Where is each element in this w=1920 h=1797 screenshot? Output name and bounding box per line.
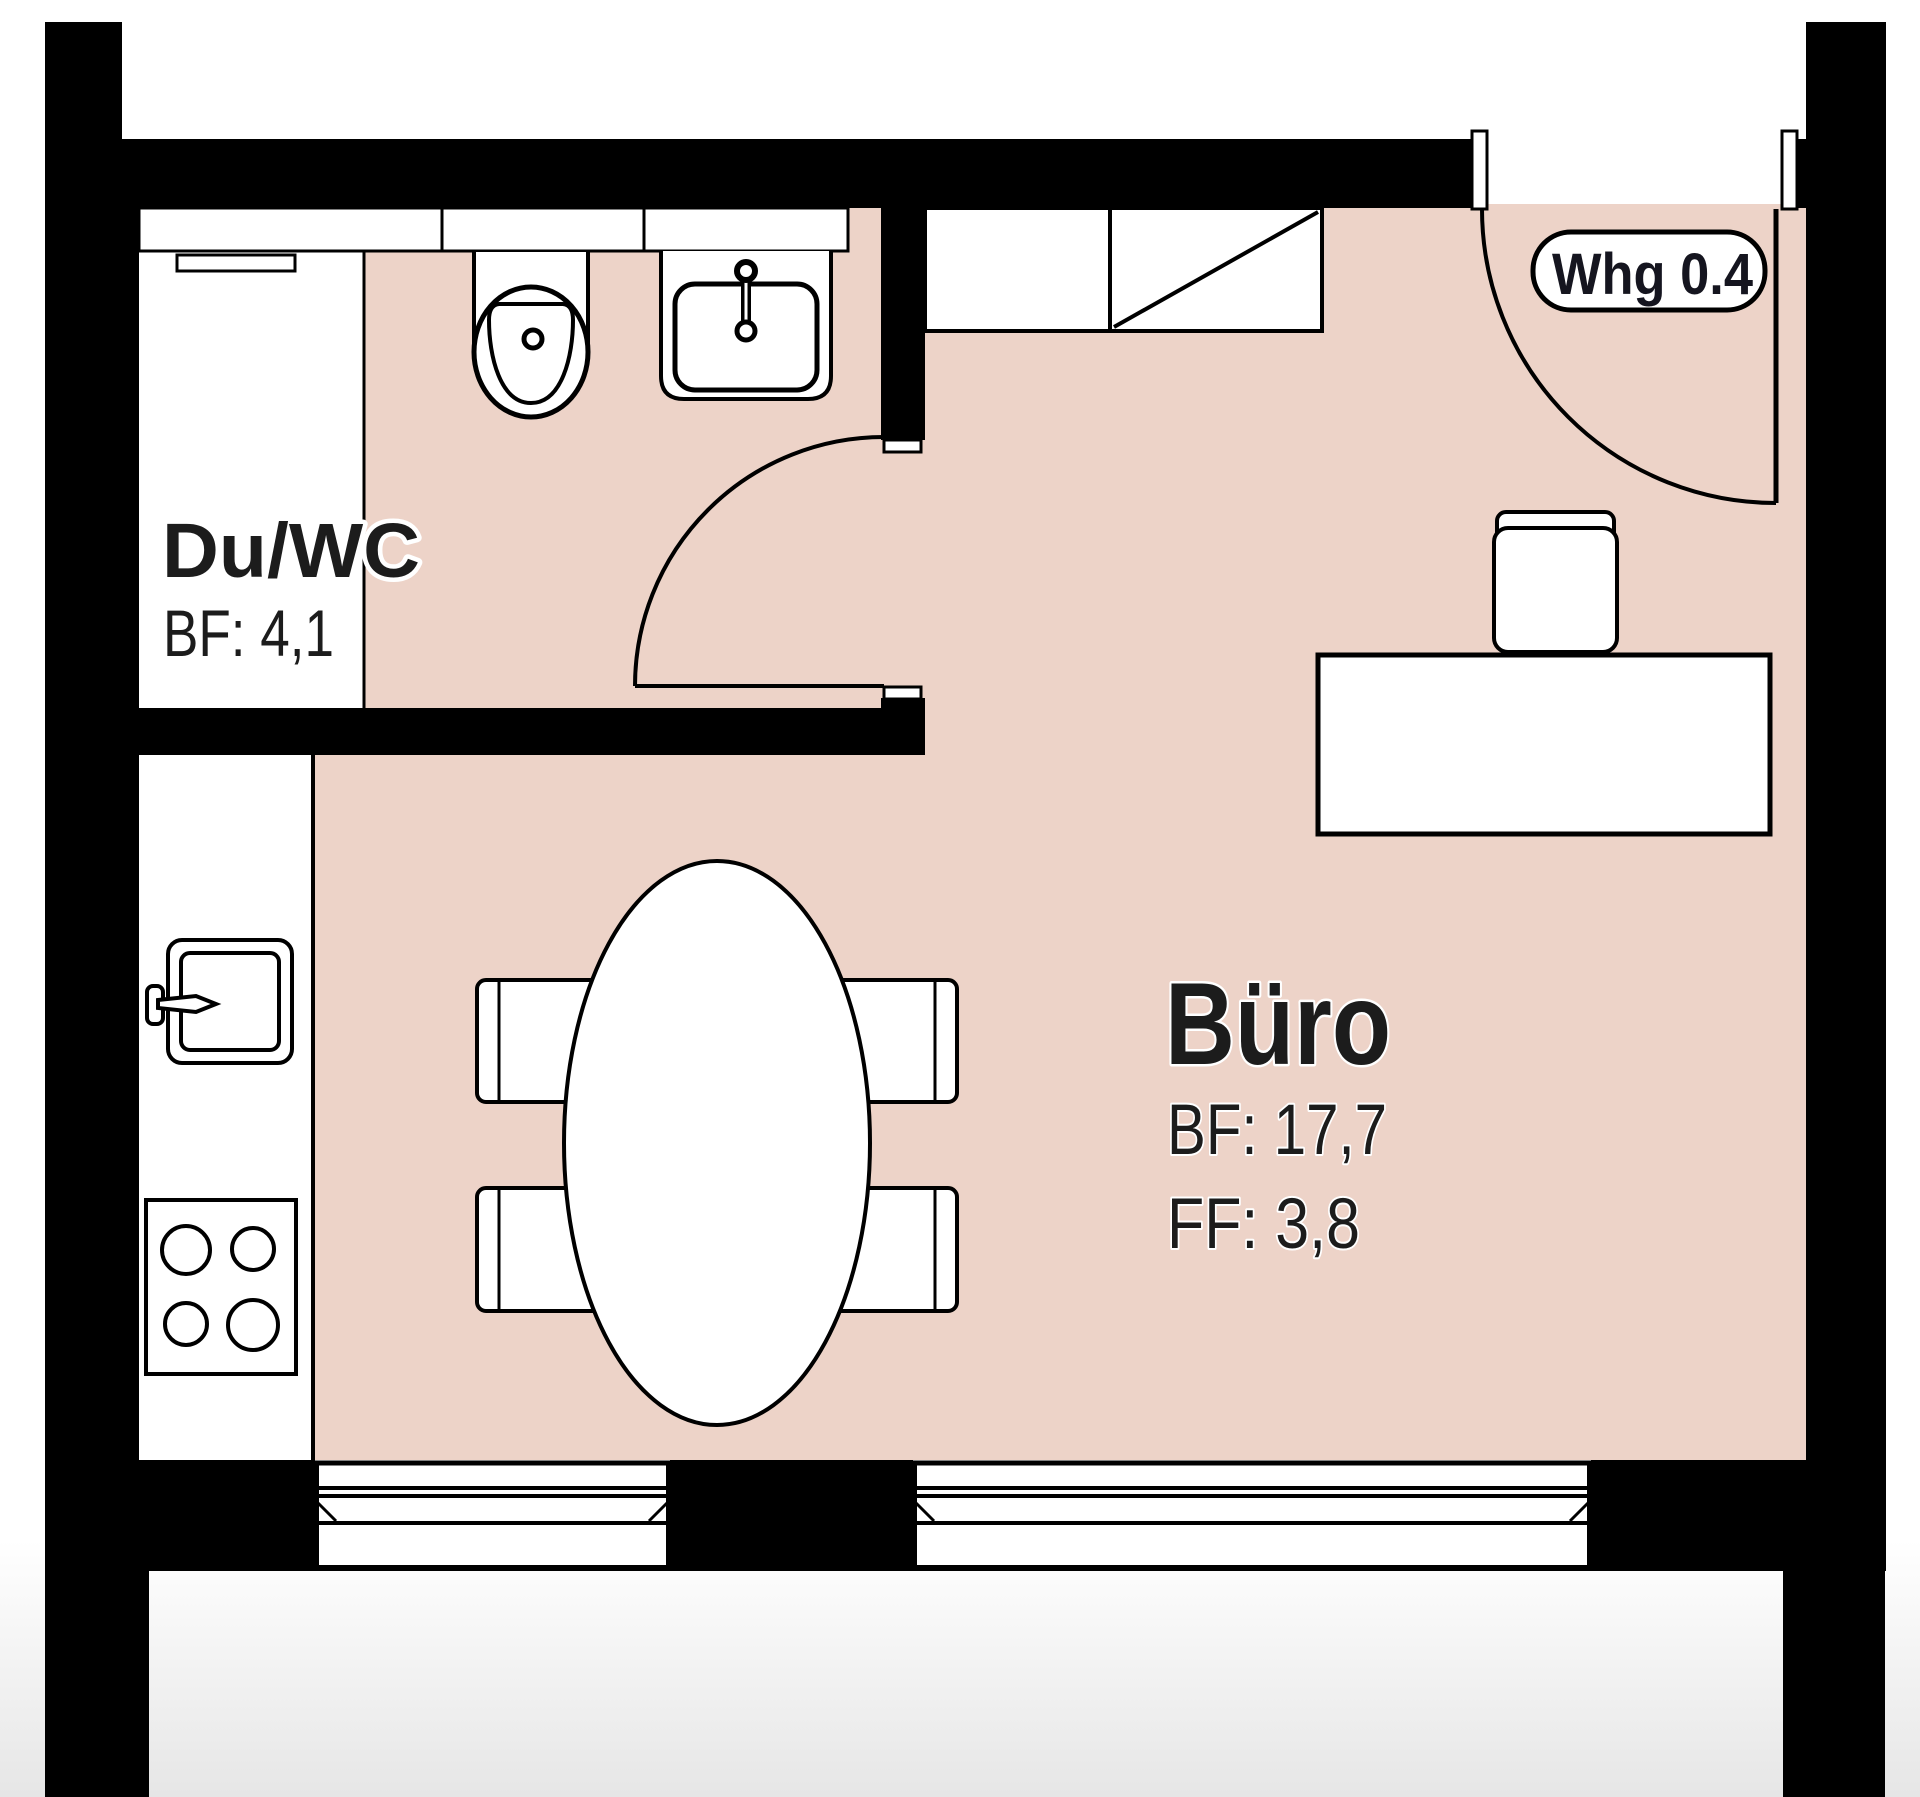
svg-text:Du/WC: Du/WC <box>162 508 420 594</box>
svg-text:BF: 4,1: BF: 4,1 <box>163 596 334 670</box>
svg-text:BF: 17,7: BF: 17,7 <box>1167 1091 1387 1170</box>
svg-text:FF: 3,8: FF: 3,8 <box>1167 1185 1360 1264</box>
svg-text:Whg 0.4: Whg 0.4 <box>1552 242 1753 307</box>
svg-text:Büro: Büro <box>1165 958 1391 1089</box>
